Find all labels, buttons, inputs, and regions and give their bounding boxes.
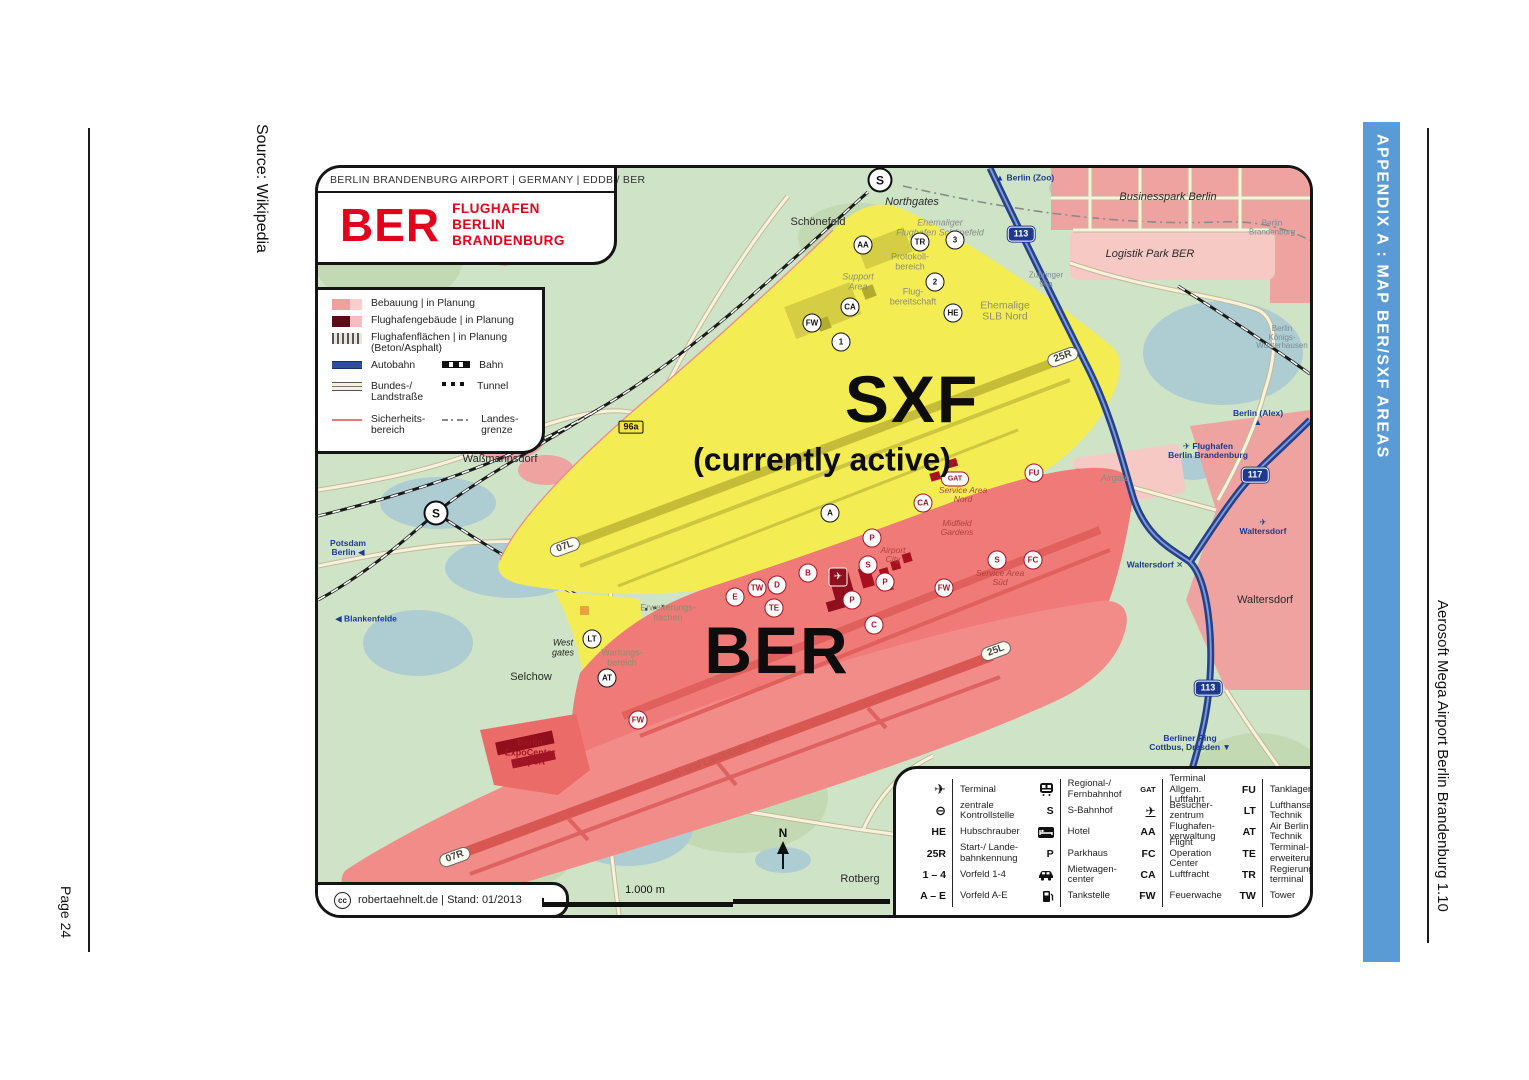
symbol-legend-entry: ⊖zentrale Kontrollstelle xyxy=(912,800,1020,821)
sxf-area-label: SXF xyxy=(845,361,979,437)
runway-badge: 25L xyxy=(979,639,1013,663)
map-marker-d: D xyxy=(768,576,787,595)
map-marker-2: 2 xyxy=(926,273,945,292)
symbol-legend-entry: CALuftfracht xyxy=(1122,864,1222,885)
legend-row: Landes- grenze xyxy=(442,414,534,437)
symbol-label: Terminal xyxy=(952,779,1020,800)
symbol-abbrev: P xyxy=(1020,843,1060,864)
map-label: Start- und Landebahn Süd xyxy=(658,734,771,786)
ber-logo: BER FLUGHAFEN BERLIN BRANDENBURG xyxy=(318,193,614,262)
map-header-box: BERLIN BRANDENBURG AIRPORT | GERMANY | E… xyxy=(315,165,617,265)
map-label: Service Area Süd xyxy=(976,569,1024,587)
landstrasse-swatch-icon xyxy=(332,382,362,391)
ber-area-label: BER xyxy=(704,612,849,688)
compass-n-label: N xyxy=(770,826,796,840)
symbol-label: Vorfeld 1-4 xyxy=(952,864,1020,885)
legend-row: Bundes-/ Landstraße xyxy=(332,381,442,404)
map-label: Zubringer 96a xyxy=(1029,271,1063,288)
legend-row: Bahn xyxy=(442,360,534,371)
map-label: Berliner Ring Cottbus, Dresden ▼ xyxy=(1149,734,1231,752)
map-marker-1: 1 xyxy=(832,333,851,352)
symbol-abbrev: TE xyxy=(1222,843,1262,864)
map-label: ✈ Flughafen Berlin Brandenburg xyxy=(1168,442,1248,460)
symbol-legend-entry: FWFeuerwache xyxy=(1122,886,1222,907)
legend-row: Sicherheits- bereich xyxy=(332,414,442,437)
map-marker-p: P xyxy=(843,591,862,610)
airport-map: SchönefeldNorthgatesEhemaliger Flughafen… xyxy=(315,165,1313,918)
map-label: Ehemaliger Flughafen Schönefeld xyxy=(896,218,984,237)
map-label: Protokoll- bereich xyxy=(891,252,929,271)
grenze-swatch-icon xyxy=(442,419,472,421)
map-label: Northgates xyxy=(885,197,939,209)
attribution-text: robertaehnelt.de | Stand: 01/2013 xyxy=(358,894,522,906)
cc-icon: cc xyxy=(334,892,351,909)
sicherheit-swatch-icon xyxy=(332,419,362,421)
train-icon xyxy=(1020,779,1060,800)
legend-label: Bebauung | in Planung xyxy=(371,298,475,309)
symbol-label: Hotel xyxy=(1060,822,1122,843)
legend-row: Autobahn xyxy=(332,360,442,371)
map-header-title: BERLIN BRANDENBURG AIRPORT | GERMANY | E… xyxy=(318,168,614,193)
symbol-label: Flight Operation Center xyxy=(1162,843,1222,864)
autobahn-swatch-icon xyxy=(332,361,362,369)
map-marker-at: AT xyxy=(598,669,617,688)
runway-badge: 07L xyxy=(548,535,582,559)
symbol-legend-entry: TRRegierungs- terminal xyxy=(1222,864,1313,885)
symbol-label: Terminal Allgem. Luftfahrt xyxy=(1162,779,1222,800)
symbol-label: Vorfeld A-E xyxy=(952,886,1020,907)
legend-row: Flughafenflächen | in Planung (Beton/Asp… xyxy=(332,332,534,355)
attribution: cc robertaehnelt.de | Stand: 01/2013 xyxy=(315,882,569,918)
symbol-legend-entry: Regional-/ Fernbahnhof xyxy=(1020,779,1122,800)
map-marker-fw: FW xyxy=(935,579,954,598)
right-margin-rule xyxy=(1427,128,1429,943)
symbol-legend-entry: 25RStart-/ Lande- bahnkennung xyxy=(912,843,1020,864)
symbol-legend-entry: FCFlight Operation Center xyxy=(1122,843,1222,864)
map-marker-aa: AA xyxy=(854,236,873,255)
symbol-legend-column: FUTanklagerLTLufthansa TechnikATAir Berl… xyxy=(1222,779,1313,907)
symbol-label: Hubschrauber xyxy=(952,822,1020,843)
map-label: Ehemalige SLB Nord xyxy=(980,301,1030,324)
bebauung-swatch-icon xyxy=(332,299,362,310)
symbol-label: S-Bahnhof xyxy=(1060,800,1122,821)
source-credit: Source: Wikipedia xyxy=(252,124,270,253)
symbol-label: Mietwagen- center xyxy=(1060,864,1122,885)
motorway-badge: 113 xyxy=(1195,681,1222,696)
map-label: Waßmannsdorf xyxy=(463,454,538,466)
symbol-legend-entry: ✈Besucher- zentrum xyxy=(1122,800,1222,821)
symbol-legend-entry: Mietwagen- center xyxy=(1020,864,1122,885)
symbol-abbrev: FC xyxy=(1122,843,1162,864)
car-icon xyxy=(1020,864,1060,885)
motorway-badge: 113 xyxy=(1008,227,1035,242)
map-marker-s: S xyxy=(859,556,878,575)
symbol-legend-entry: Hotel xyxy=(1020,822,1122,843)
symbol-label: Besucher- zentrum xyxy=(1162,800,1222,821)
map-marker-p: P xyxy=(876,573,895,592)
scale-line xyxy=(542,898,890,907)
symbol-legend-entry: ✈Terminal xyxy=(912,779,1020,800)
symbol-legend-entry: LTLufthansa Technik xyxy=(1222,800,1313,821)
symbol-label: Tower xyxy=(1262,886,1313,907)
symbol-label: Regional-/ Fernbahnhof xyxy=(1060,779,1122,800)
symbol-legend-entry: 1 – 4Vorfeld 1-4 xyxy=(912,864,1020,885)
map-marker-he: HE xyxy=(944,304,963,323)
symbol-abbrev: AT xyxy=(1222,822,1262,843)
symbol-label: Tanklager xyxy=(1262,779,1313,800)
road-badge: 96a xyxy=(618,421,643,434)
map-label: Midfield Gardens xyxy=(941,519,974,537)
map-label: Wartungs- bereich xyxy=(601,648,642,667)
symbol-legend-entry: GATTerminal Allgem. Luftfahrt xyxy=(1122,779,1222,800)
legend-label: Tunnel xyxy=(477,381,508,392)
appendix-banner-text: APPENDIX A : MAP BER/SXF AREAS xyxy=(1373,122,1391,962)
map-marker-e: E xyxy=(726,588,745,607)
hotel-icon xyxy=(1020,822,1060,843)
legend-row: Bebauung | in Planung xyxy=(332,298,534,310)
map-marker-ca: CA xyxy=(914,494,933,513)
map-marker-3: 3 xyxy=(946,231,965,250)
map-marker-p: P xyxy=(863,529,882,548)
document-footer: Aerosoft Mega Airport Berlin Brandenburg… xyxy=(1434,600,1451,912)
ber-logo-name: FLUGHAFEN BERLIN BRANDENBURG xyxy=(452,201,565,250)
symbol-label: zentrale Kontrollstelle xyxy=(952,800,1020,821)
symbol-legend: ✈Terminal⊖zentrale KontrollstelleHEHubsc… xyxy=(893,766,1313,918)
symbol-legend-entry: PParkhaus xyxy=(1020,843,1122,864)
map-label: ▲ Berlin (Zoo) xyxy=(996,173,1054,182)
map-marker-fw: FW xyxy=(629,711,648,730)
map-label: Logistik Park BER xyxy=(1106,249,1195,261)
symbol-legend-column: ✈Terminal⊖zentrale KontrollstelleHEHubsc… xyxy=(912,779,1020,907)
checkpoint-icon: ⊖ xyxy=(912,800,952,821)
symbol-label: Start-/ Lande- bahnkennung xyxy=(952,843,1020,864)
terminal-icon: ✈ xyxy=(912,779,952,800)
fuel-icon xyxy=(1020,886,1060,907)
legend-row: Tunnel xyxy=(442,381,534,404)
page-number: Page 24 xyxy=(58,886,74,938)
symbol-abbrev: A – E xyxy=(912,886,952,907)
symbol-legend-entry: HEHubschrauber xyxy=(912,822,1020,843)
map-marker-fw: FW xyxy=(803,314,822,333)
symbol-abbrev: TW xyxy=(1222,886,1262,907)
scale-label: 1.000 m xyxy=(590,884,700,896)
symbol-abbrev: TR xyxy=(1222,864,1262,885)
map-label: Schönefeld xyxy=(790,217,845,229)
map-label: Support Area xyxy=(842,272,874,291)
symbol-label: Tankstelle xyxy=(1060,886,1122,907)
appendix-banner: APPENDIX A : MAP BER/SXF AREAS xyxy=(1363,122,1400,962)
symbol-abbrev: S xyxy=(1020,800,1060,821)
symbol-abbrev: FW xyxy=(1122,886,1162,907)
map-marker-lt: LT xyxy=(583,630,602,649)
compass: N xyxy=(770,826,796,854)
legend-label: Bahn xyxy=(479,360,503,371)
symbol-legend-entry: TETerminal- erweiterungen xyxy=(1222,843,1313,864)
legend-row: Flughafengebäude | in Planung xyxy=(332,315,534,327)
map-label: Berlin ExpoCenter Airport xyxy=(505,738,556,767)
symbol-label: Lufthansa Technik xyxy=(1262,800,1313,821)
tunnel-swatch-icon xyxy=(442,382,468,386)
bahn-swatch-icon xyxy=(442,361,470,368)
map-label: Waltersdorf xyxy=(1237,595,1293,607)
symbol-label: Feuerwache xyxy=(1162,886,1222,907)
scale-bar: 1.000 m xyxy=(542,884,890,907)
map-legend: Bebauung | in PlanungFlughafengebäude | … xyxy=(315,287,545,454)
map-marker-tw: TW xyxy=(748,579,767,598)
sbahn-station-icon: S xyxy=(868,168,893,193)
gebaeude-swatch-icon xyxy=(332,316,362,327)
symbol-label: Regierungs- terminal xyxy=(1262,864,1313,885)
map-marker-s: S xyxy=(988,551,1007,570)
map-label: Erweiterungs- flächen xyxy=(640,603,696,622)
symbol-legend-entry: FUTanklager xyxy=(1222,779,1313,800)
symbol-legend-entry: Tankstelle xyxy=(1020,886,1122,907)
map-label: Service Area Nord xyxy=(939,486,987,504)
symbol-legend-column: Regional-/ FernbahnhofSS-BahnhofHotelPPa… xyxy=(1020,779,1122,907)
symbol-label: Luftfracht xyxy=(1162,864,1222,885)
motorway-badge: 117 xyxy=(1242,468,1269,483)
map-label: West gates xyxy=(552,638,574,657)
compass-arrow-icon xyxy=(777,841,789,854)
map-marker-a: A xyxy=(821,504,840,523)
symbol-label: Parkhaus xyxy=(1060,843,1122,864)
symbol-abbrev: 25R xyxy=(912,843,952,864)
map-marker-b: B xyxy=(799,564,818,583)
visitor-icon: ✈ xyxy=(1122,800,1162,821)
map-marker-ca: CA xyxy=(841,298,860,317)
page: Source: Wikipedia Page 24 APPENDIX A : M… xyxy=(0,0,1529,1080)
legend-label: Autobahn xyxy=(371,360,415,371)
sbahn-station-icon: S xyxy=(424,501,449,526)
symbol-abbrev: GAT xyxy=(1122,779,1162,800)
map-label: ✈ Waltersdorf xyxy=(1240,518,1287,536)
symbol-legend-column: GATTerminal Allgem. Luftfahrt✈Besucher- … xyxy=(1122,779,1222,907)
map-label: Airgate xyxy=(1101,474,1130,484)
symbol-abbrev: CA xyxy=(1122,864,1162,885)
map-marker-c: C xyxy=(865,616,884,635)
sxf-active-note: (currently active) xyxy=(693,442,951,479)
map-marker-fc: FC xyxy=(1024,551,1043,570)
symbol-abbrev: 1 – 4 xyxy=(912,864,952,885)
map-label: Businesspark Berlin xyxy=(1119,192,1216,204)
map-label: Airport City xyxy=(880,546,905,564)
map-label: ◀ Blankenfelde xyxy=(335,614,397,623)
ber-logo-code: BER xyxy=(340,205,440,246)
legend-label: Landes- grenze xyxy=(481,414,518,437)
symbol-legend-entry: ATAir Berlin Technik xyxy=(1222,822,1313,843)
symbol-legend-entry: A – EVorfeld A-E xyxy=(912,886,1020,907)
flaechen-swatch-icon xyxy=(332,333,362,344)
symbol-legend-entry: SS-Bahnhof xyxy=(1020,800,1122,821)
map-label: Potsdam Berlin ◀ xyxy=(330,539,366,557)
symbol-abbrev: AA xyxy=(1122,822,1162,843)
left-margin-rule xyxy=(88,128,90,952)
legend-label: Flughafenflächen | in Planung (Beton/Asp… xyxy=(371,332,507,355)
runway-badge: 25R xyxy=(1045,345,1080,369)
terminal-icon: ✈ xyxy=(829,568,848,587)
map-marker-tr: TR xyxy=(911,233,930,252)
map-label: Berlin (Alex) ▲ xyxy=(1232,409,1284,427)
map-marker-fu: FU xyxy=(1025,464,1044,483)
legend-label: Flughafengebäude | in Planung xyxy=(371,315,514,326)
symbol-abbrev: LT xyxy=(1222,800,1262,821)
legend-label: Bundes-/ Landstraße xyxy=(371,381,423,404)
map-label: Berlin Königs- Wusterhausen xyxy=(1256,325,1307,351)
symbol-label: Air Berlin Technik xyxy=(1262,822,1313,843)
map-label: Waltersdorf ✕ xyxy=(1127,560,1183,569)
symbol-legend-entry: TWTower xyxy=(1222,886,1313,907)
legend-label: Sicherheits- bereich xyxy=(371,414,425,437)
runway-badge: 07R xyxy=(437,845,472,869)
symbol-abbrev: FU xyxy=(1222,779,1262,800)
map-label: Berlin Brandenburg xyxy=(1249,219,1295,236)
map-label: Selchow xyxy=(510,672,552,684)
symbol-abbrev: HE xyxy=(912,822,952,843)
symbol-label: Terminal- erweiterungen xyxy=(1262,843,1313,864)
